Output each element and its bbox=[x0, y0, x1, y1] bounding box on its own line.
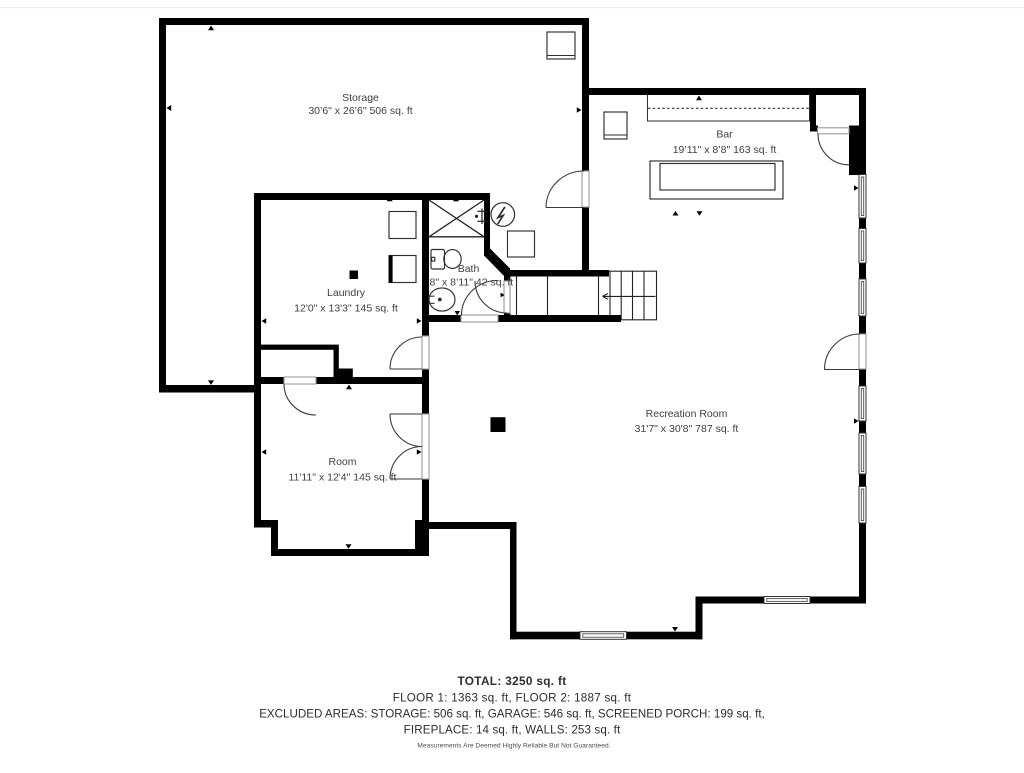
svg-text:31'7" x 30'8" 787 sq. ft: 31'7" x 30'8" 787 sq. ft bbox=[635, 423, 739, 435]
svg-text:Room: Room bbox=[328, 456, 356, 468]
svg-text:Bath: Bath bbox=[458, 263, 480, 275]
svg-text:8" x 8’11" 42 sq. ft: 8" x 8’11" 42 sq. ft bbox=[430, 277, 514, 289]
svg-text:FLOOR 1: 1363 sq. ft, FLOOR 2:: FLOOR 1: 1363 sq. ft, FLOOR 2: 1887 sq. … bbox=[393, 692, 632, 705]
svg-text:FIREPLACE: 14 sq. ft, WALLS: 2: FIREPLACE: 14 sq. ft, WALLS: 253 sq. ft bbox=[404, 724, 621, 737]
svg-text:TOTAL: 3250 sq. ft: TOTAL: 3250 sq. ft bbox=[457, 674, 566, 688]
svg-text:Storage: Storage bbox=[342, 92, 379, 104]
svg-text:11'11" x 12'4" 145 sq. ft: 11'11" x 12'4" 145 sq. ft bbox=[289, 472, 397, 484]
svg-text:19’11" x 8’8" 163 sq. ft: 19’11" x 8’8" 163 sq. ft bbox=[673, 144, 777, 156]
svg-text:30’6" x 26’6" 506 sq. ft: 30’6" x 26’6" 506 sq. ft bbox=[308, 105, 412, 117]
svg-text:EXCLUDED AREAS: STORAGE: 506 s: EXCLUDED AREAS: STORAGE: 506 sq. ft, GAR… bbox=[259, 708, 765, 721]
svg-text:Measurements Are Deemed Highly: Measurements Are Deemed Highly Reliable … bbox=[417, 743, 610, 750]
svg-text:Recreation Room: Recreation Room bbox=[646, 408, 728, 420]
svg-text:Laundry: Laundry bbox=[327, 287, 366, 299]
svg-text:Bar: Bar bbox=[716, 129, 733, 141]
svg-text:12'0" x 13'3" 145 sq. ft: 12'0" x 13'3" 145 sq. ft bbox=[294, 303, 398, 315]
